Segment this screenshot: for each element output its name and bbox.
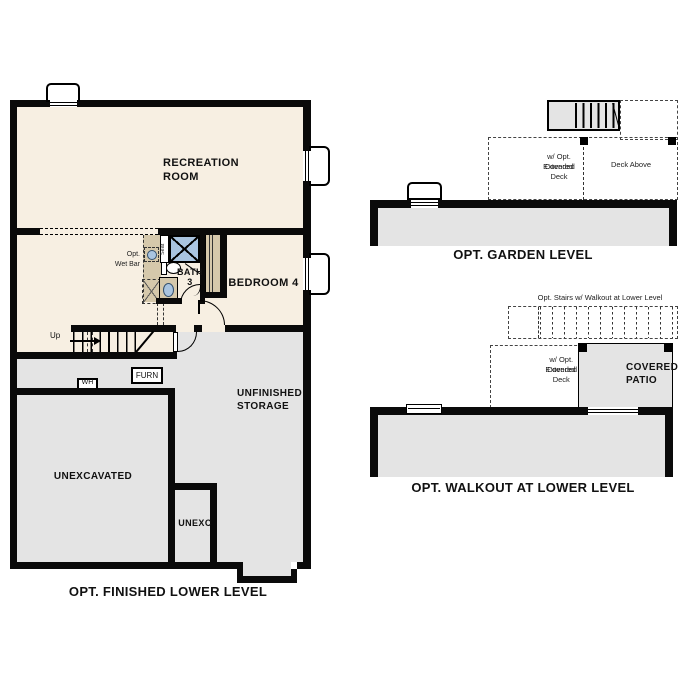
covered-patio-label: COVERED PATIO [586,362,666,375]
wall [665,407,673,477]
window-mullion-line [408,408,440,409]
extended-deck-label: w/ Opt. Extended Covered Deck [493,355,584,365]
label-line: PATIO [626,375,657,388]
opt-stairs-label: Opt. Stairs w/ Walkout at Lower Level [470,293,687,303]
floorplan-sheet: Up Opt. Wet Bar Seat BATH 3 [0,0,687,687]
patio-post [578,343,587,352]
wall [370,407,378,477]
house-body [378,415,665,477]
label-line: COVERED [626,362,678,375]
window-icon [406,404,442,414]
walkout-level-caption: OPT. WALKOUT AT LOWER LEVEL [398,480,648,495]
sliding-door [588,407,638,415]
patio-post [664,343,673,352]
walkout-level-plan: Opt. Stairs w/ Walkout at Lower Level w/… [0,0,687,687]
opt-stairs-edge [538,307,539,338]
opt-stairs-treads [540,307,674,338]
